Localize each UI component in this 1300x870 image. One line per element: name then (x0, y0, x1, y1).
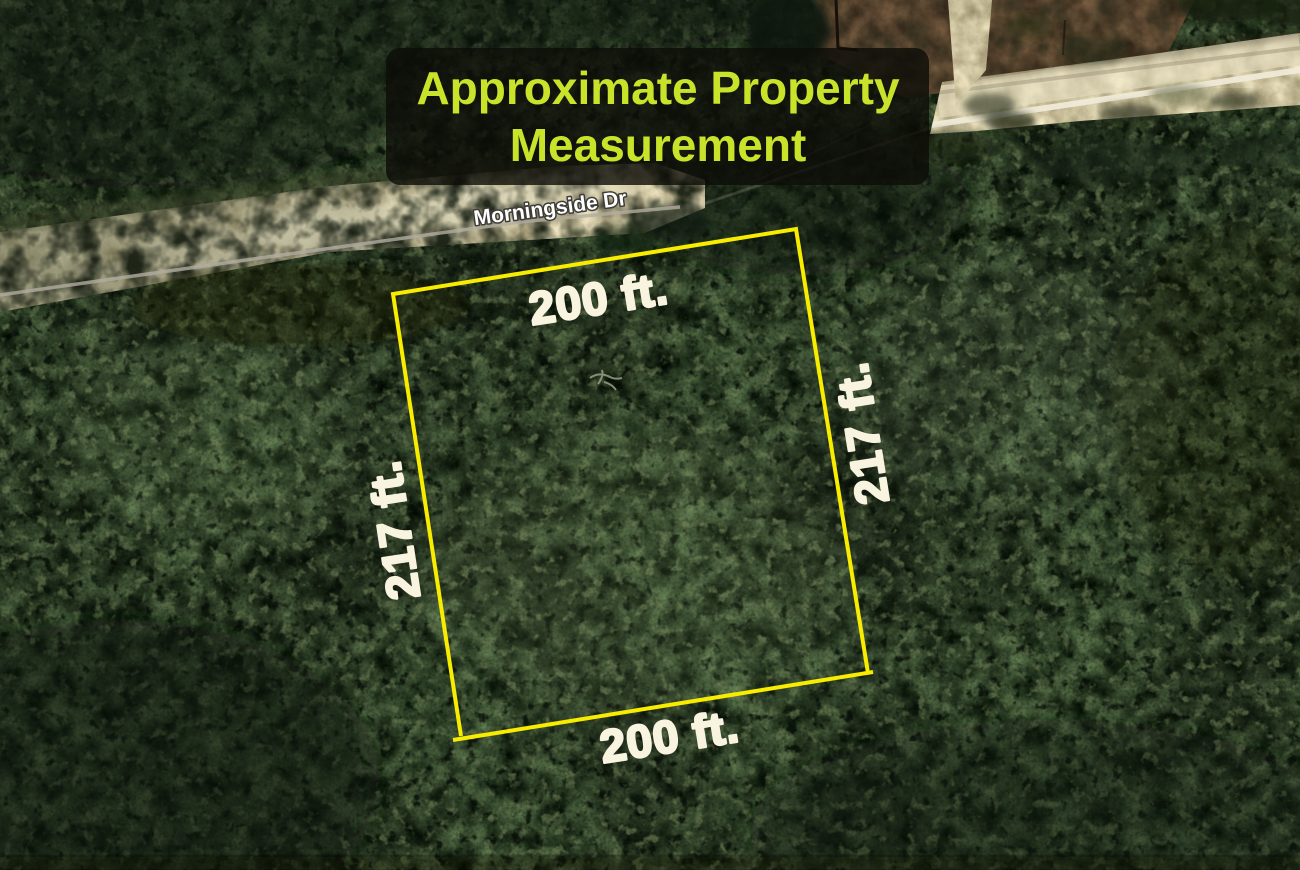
svg-text:Approximate Property: Approximate Property (416, 62, 900, 114)
svg-text:Measurement: Measurement (510, 119, 807, 171)
